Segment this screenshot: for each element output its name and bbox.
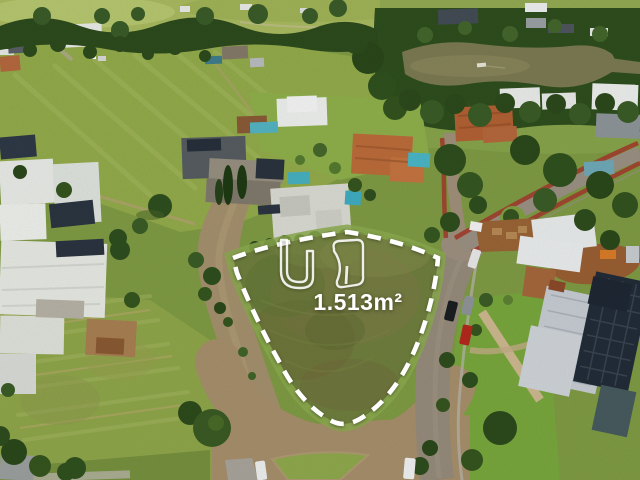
area-label: 1.513m² (313, 289, 402, 315)
aerial-photo: 1.513m² (0, 0, 640, 480)
logo-inner-bar (346, 266, 347, 284)
photo-grain (0, 0, 640, 480)
listing-photo: 1.513m² (0, 0, 640, 480)
